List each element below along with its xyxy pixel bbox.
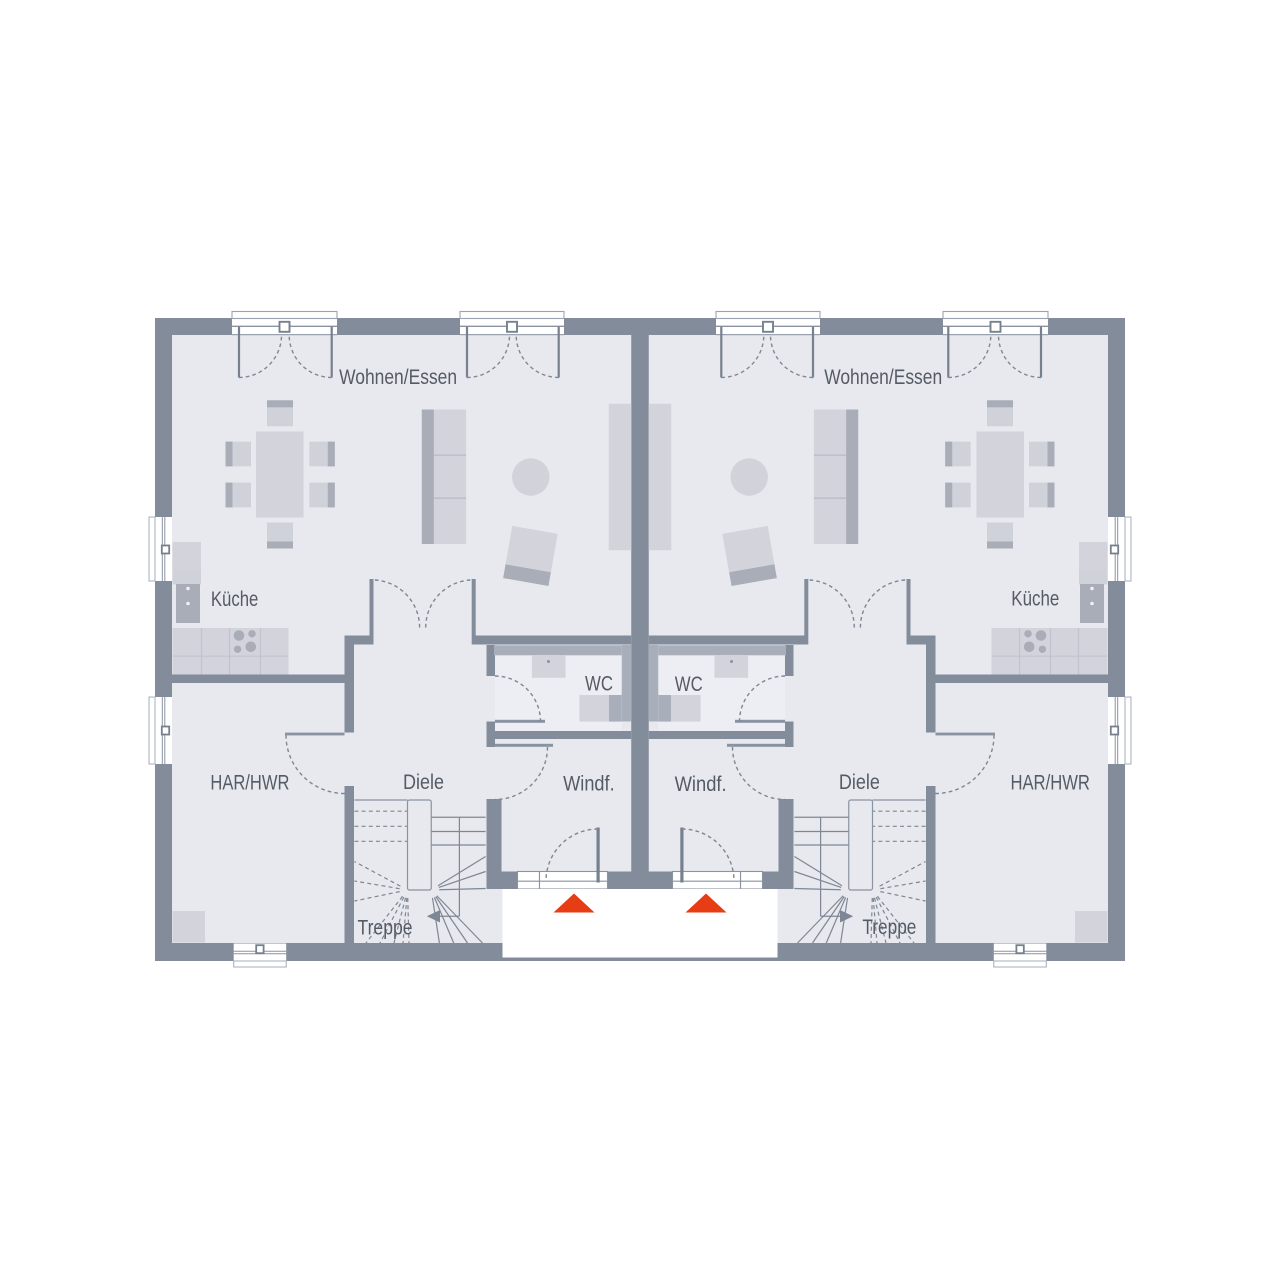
svg-text:Küche: Küche	[211, 588, 259, 611]
svg-text:Treppe: Treppe	[358, 917, 413, 940]
svg-text:Diele: Diele	[403, 771, 444, 794]
svg-text:Wohnen/Essen: Wohnen/Essen	[824, 366, 942, 389]
svg-text:HAR/HWR: HAR/HWR	[1010, 772, 1090, 795]
svg-text:Treppe: Treppe	[862, 916, 916, 939]
svg-text:Windf.: Windf.	[563, 773, 615, 796]
svg-text:Diele: Diele	[839, 771, 880, 794]
svg-text:Wohnen/Essen: Wohnen/Essen	[339, 366, 457, 389]
svg-text:HAR/HWR: HAR/HWR	[210, 772, 289, 795]
svg-text:Küche: Küche	[1011, 588, 1059, 611]
svg-text:Windf.: Windf.	[675, 773, 727, 796]
svg-text:WC: WC	[585, 673, 613, 696]
svg-text:WC: WC	[675, 673, 703, 696]
